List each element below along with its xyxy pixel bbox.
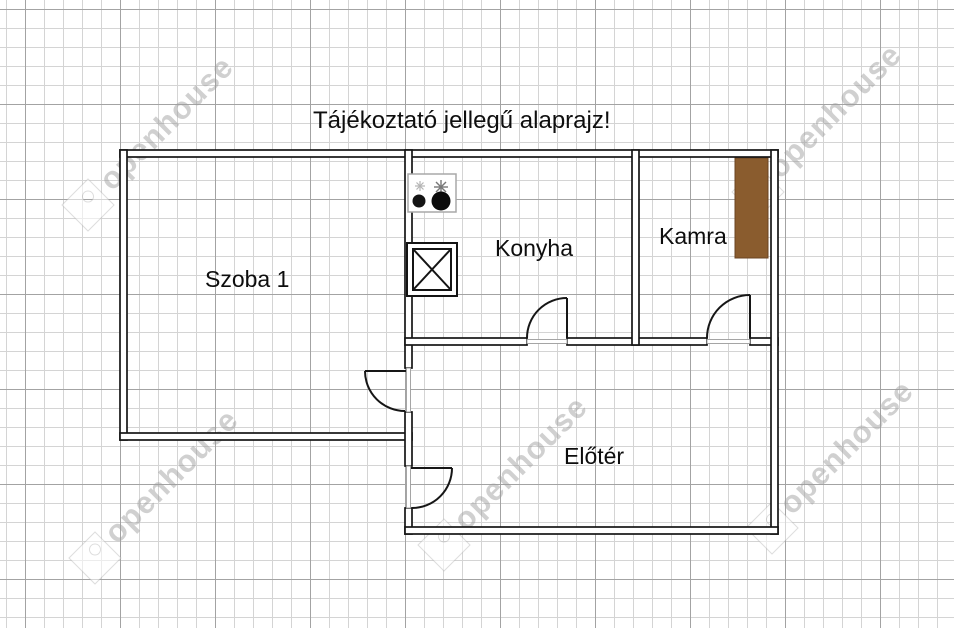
watermark-text: openhouse	[772, 373, 920, 521]
watermark: openhouse	[418, 389, 594, 571]
stove-icon	[408, 174, 456, 212]
wall-szoba1-bottom	[120, 433, 412, 440]
door-swing-icon	[527, 298, 567, 338]
stove-burner-small-icon	[415, 181, 425, 191]
door-entrance	[411, 468, 452, 508]
door-kamra	[707, 295, 750, 338]
wall-right	[771, 150, 778, 534]
threshold-kamra	[707, 340, 750, 344]
room-label-eloter: Előtér	[564, 443, 624, 470]
wall-left	[120, 150, 127, 440]
floorplan-drawing: openhouse openhouse openhouse openhouse …	[0, 0, 954, 628]
wall-konyha-bottom-left	[405, 338, 527, 345]
door-swing-icon	[365, 371, 405, 411]
door-swing-icon	[707, 295, 750, 338]
wall-top	[120, 150, 778, 157]
door-szoba1	[365, 371, 406, 411]
wall-eloter-bottom	[405, 527, 778, 534]
chimney-icon	[407, 243, 457, 296]
stove-plate-small-icon	[413, 195, 426, 208]
page-title: Tájékoztató jellegű alaprajz!	[313, 107, 611, 135]
threshold-konyha	[527, 340, 567, 344]
wall-konyha-kamra-divider	[632, 150, 639, 345]
threshold-szoba1	[407, 368, 411, 412]
floorplan-canvas: openhouse openhouse openhouse openhouse …	[0, 0, 954, 628]
stove-plate-large-icon	[432, 192, 451, 211]
watermark: openhouse	[62, 49, 240, 231]
room-label-szoba1: Szoba 1	[205, 266, 289, 293]
watermark-text: openhouse	[92, 49, 240, 197]
room-label-kamra: Kamra	[659, 223, 727, 250]
threshold-entrance	[407, 466, 411, 508]
watermark: openhouse	[69, 402, 245, 584]
room-label-konyha: Konyha	[495, 235, 573, 262]
wall-middle-vertical-mid	[405, 412, 412, 466]
watermark-text: openhouse	[760, 37, 908, 185]
cabinet-rect	[735, 158, 768, 258]
door-swing-icon	[412, 468, 452, 508]
door-konyha	[527, 298, 567, 338]
